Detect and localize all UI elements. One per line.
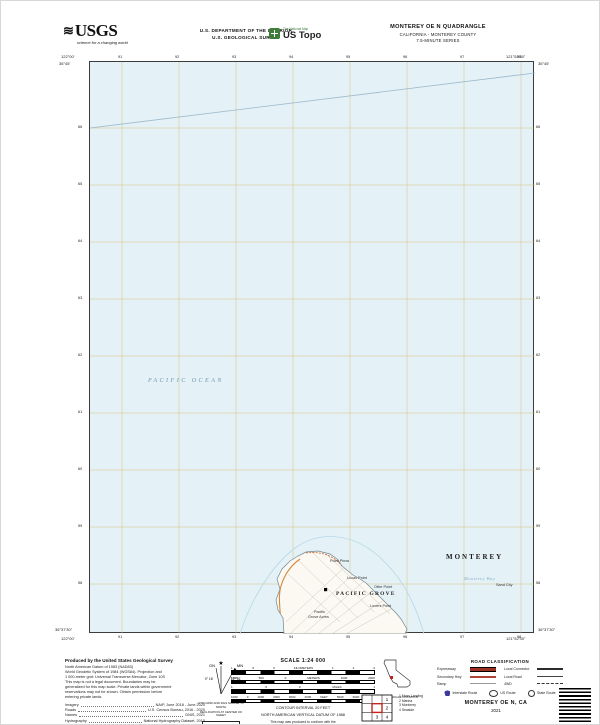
contour-interval: CONTOUR INTERVAL 20 FEET — [229, 706, 377, 710]
scale-number: 1 — [373, 685, 375, 689]
road-classification-legend: ROAD CLASSIFICATION ExpresswayLocal Conn… — [437, 659, 563, 697]
usgs-topo-sheet: ≋ USGS science for a changing world U.S.… — [0, 0, 600, 725]
production-notes: Produced by the United States Geological… — [65, 658, 205, 725]
adjoining-quads-list: 1 Moss Landing2 Marina3 Monterey4 Seasid… — [399, 694, 423, 725]
legend-row: Secondary Hwy — [437, 675, 496, 679]
grid-tick-left: 61 — [78, 410, 82, 414]
scale-number: KILOMETERS — [294, 666, 313, 670]
scale-number: 1 — [231, 685, 233, 689]
map-label: Lovers Point — [370, 604, 391, 608]
corner-coord-tr-lon: 121°52'30" — [506, 54, 525, 59]
true-north-star-icon: ★ — [218, 660, 223, 667]
map-label: Lucas Point — [347, 576, 367, 580]
dotted-leader — [79, 713, 183, 717]
scale-number: FEET — [320, 695, 328, 699]
data-sources-list: ImageryNAIP, June 2018 - June 2020RoadsU… — [65, 703, 205, 725]
quad-state: CALIFORNIA - MONTEREY COUNTY — [343, 32, 533, 37]
grid-tick-bottom: 98 — [517, 635, 521, 639]
map-label: PACIFIC GROVE — [336, 591, 396, 597]
scale-number: 1000 — [257, 695, 264, 699]
legend-title: ROAD CLASSIFICATION — [437, 659, 563, 664]
grid-tick-left: 63 — [78, 296, 82, 300]
grid-tick-top: 94 — [289, 55, 293, 59]
grid-tick-top: 95 — [346, 55, 350, 59]
interstate-shield-icon — [444, 690, 450, 696]
adjoining-quad-name: 1 Moss Landing — [399, 694, 423, 699]
quad-location-marker — [390, 676, 393, 679]
grid-tick-left: 62 — [78, 353, 82, 357]
map-label: MONTEREY — [446, 553, 503, 561]
grid-tick-bottom: 91 — [118, 635, 122, 639]
ustopo-logo: The National Map US Topo — [269, 27, 321, 40]
road-style-sample-icon — [470, 676, 496, 678]
scale-number: 0 — [273, 666, 275, 670]
legend-row-label: Ramp — [437, 682, 446, 686]
grid-tick-bottom: 94 — [289, 635, 293, 639]
corner-coord-br-lat: 36°37'30" — [538, 627, 555, 632]
legend-row-label: 4WD — [504, 682, 512, 686]
map-label: Pacific — [314, 610, 325, 614]
scale-bar — [231, 670, 375, 675]
grid-tick-top: 96 — [403, 55, 407, 59]
grid-tick-right: 63 — [536, 296, 540, 300]
notes-heading: Produced by the United States Geological… — [65, 658, 205, 663]
map-drawing — [90, 62, 535, 634]
map-label: Monterey Bay — [464, 576, 495, 581]
scale-number: 4000 — [305, 695, 312, 699]
map-label: PACIFIC OCEAN — [148, 378, 224, 384]
route-shield-label: State Route — [537, 691, 555, 695]
scale-number: .5 — [265, 685, 268, 689]
quad-series: 7.5-MINUTE SERIES — [343, 38, 533, 43]
ustopo-name: US Topo — [283, 31, 321, 40]
road-style-sample-icon — [537, 683, 563, 684]
map-label: Sand City — [496, 583, 512, 587]
quad-title: MONTEREY OE N QUADRANGLE — [343, 24, 533, 30]
scale-number: 5000 — [337, 695, 344, 699]
grid-north-label: GN — [209, 663, 215, 668]
route-shields-row: Interstate RouteUS RouteState Route — [437, 690, 563, 698]
scale-number: METERS — [307, 676, 320, 680]
adjoining-quads-diagram: 1 2 3 4 — [361, 694, 395, 722]
legend-row-label: Local Road — [504, 675, 522, 679]
scale-number: 1000 — [231, 695, 238, 699]
grid-tick-right: 62 — [536, 353, 540, 357]
vertical-datum: NORTH AMERICAN VERTICAL DATUM OF 1988 — [229, 713, 377, 717]
scale-number: 500 — [259, 676, 264, 680]
road-style-sample-icon — [537, 676, 563, 677]
grid-tick-top: 97 — [460, 55, 464, 59]
corner-coord-tl-lat: 36°45' — [59, 61, 70, 66]
grid-tick-right: 58 — [536, 581, 540, 585]
legend-row-label: Secondary Hwy — [437, 675, 462, 679]
grid-tick-left: 66 — [78, 125, 82, 129]
grid-tick-bottom: 95 — [346, 635, 350, 639]
corner-coord-bl-lat: 36°37'30" — [55, 627, 72, 632]
dotted-leader — [78, 708, 146, 712]
corner-coord-tr-lat: 36°45' — [538, 61, 549, 66]
scale-number: 3000 — [289, 695, 296, 699]
scale-number: .5 — [252, 666, 255, 670]
building-marker — [324, 588, 327, 591]
route-shield-item: State Route — [528, 690, 556, 698]
scale-number: 6000 — [353, 695, 360, 699]
quadrangle-title-block: MONTEREY OE N QUADRANGLE CALIFORNIA - MO… — [343, 24, 533, 43]
legend-row: Expressway — [437, 667, 496, 672]
scale-number: 2000 — [273, 695, 280, 699]
grid-tick-top: 92 — [175, 55, 179, 59]
scale-bar — [231, 680, 375, 685]
grid-tick-left: 59 — [78, 524, 82, 528]
scale-title: SCALE 1:24 000 — [229, 658, 377, 664]
us-shield-icon — [489, 690, 498, 697]
map-label: Grove Acres — [308, 615, 329, 619]
dotted-leader — [81, 703, 154, 707]
grid-tick-bottom: 96 — [403, 635, 407, 639]
usgs-logo: ≋ USGS science for a changing world — [63, 21, 128, 45]
scale-number: 1 — [231, 666, 233, 670]
offshore-limit-line — [90, 73, 535, 128]
utm-grid — [90, 62, 535, 634]
quadrangle-location-block: QUADRANGLE LOCATION — [377, 659, 421, 699]
road-style-sample-icon — [537, 668, 563, 670]
legend-row: Ramp — [437, 682, 496, 686]
route-shield-label: Interstate Route — [452, 691, 477, 695]
grid-tick-top: 93 — [232, 55, 236, 59]
route-shield-label: US Route — [500, 691, 515, 695]
grid-tick-bottom: 93 — [232, 635, 236, 639]
grid-tick-top: 98 — [517, 55, 521, 59]
corner-coord-tl-lon: 122°00' — [61, 54, 75, 59]
route-shield-item: US Route — [489, 690, 515, 697]
grid-tick-right: 65 — [536, 182, 540, 186]
california-outline-icon — [381, 659, 417, 689]
road-style-sample-icon — [470, 667, 496, 672]
gn-angle: 0° 16' — [205, 677, 214, 681]
sheet-title: MONTEREY OE N, CA — [431, 700, 561, 706]
grid-tick-right: 66 — [536, 125, 540, 129]
scale-number: 2000 — [368, 676, 375, 680]
dotted-leader — [89, 719, 142, 723]
map-area: PACIFIC OCEANMONTEREYMonterey BaySand Ci… — [89, 61, 534, 633]
sheet-title-block: MONTEREY OE N, CA 2021 — [431, 700, 561, 713]
barcode — [559, 688, 591, 722]
notes-lines: North American Datum of 1983 (NAD83)Worl… — [65, 665, 205, 700]
scale-number: 1000 — [341, 676, 348, 680]
sheet-year: 2021 — [431, 708, 561, 713]
road-style-sample-icon — [470, 683, 496, 684]
national-map-icon — [269, 28, 280, 39]
scale-number: MILES — [332, 685, 341, 689]
usgs-wordmark: USGS — [75, 21, 117, 41]
scale-block: SCALE 1:24 000 1.50KILOMETERS12310005000… — [229, 658, 377, 725]
corner-coord-br-lon: 121°52'30" — [506, 636, 525, 641]
grid-tick-left: 65 — [78, 182, 82, 186]
scale-number: 3 — [373, 666, 375, 670]
scale-number: 2 — [353, 666, 355, 670]
grid-tick-left: 58 — [78, 581, 82, 585]
route-shield-item: Interstate Route — [444, 690, 477, 696]
legend-row: 4WD — [504, 682, 563, 686]
grid-tick-bottom: 97 — [460, 635, 464, 639]
scale-number: 0 — [299, 685, 301, 689]
scale-bar — [231, 689, 375, 694]
grid-tick-right: 60 — [536, 467, 540, 471]
grid-tick-right: 64 — [536, 239, 540, 243]
scale-number: 0 — [285, 676, 287, 680]
scale-bar — [231, 699, 375, 704]
scale-bar-numbers: 1.50KILOMETERS123 — [231, 666, 375, 670]
usgs-wave-icon: ≋ — [63, 23, 74, 39]
grid-tick-right: 61 — [536, 410, 540, 414]
legend-row: Local Connector — [504, 667, 563, 672]
state-shield-icon — [528, 690, 536, 698]
scale-bars: 1.50KILOMETERS12310005000METERS100020001… — [229, 666, 377, 703]
map-label: Point Pinos — [330, 559, 349, 563]
legend-row-label: Expressway — [437, 667, 456, 671]
scale-number: 1 — [332, 666, 334, 670]
legend-rows: ExpresswayLocal ConnectorSecondary HwyLo… — [437, 667, 563, 686]
grid-tick-left: 60 — [78, 467, 82, 471]
grid-tick-right: 59 — [536, 524, 540, 528]
grid-tick-top: 91 — [118, 55, 122, 59]
grid-tick-bottom: 92 — [175, 635, 179, 639]
note-line: entering private lands. — [65, 695, 205, 700]
legend-row-label: Local Connector — [504, 667, 530, 671]
usgs-tagline: science for a changing world — [77, 40, 128, 45]
scale-number: 0 — [247, 695, 249, 699]
legend-row: Local Road — [504, 675, 563, 679]
corner-coord-bl-lon: 122°00' — [61, 636, 75, 641]
map-label: Otter Point — [374, 585, 392, 589]
grid-tick-left: 64 — [78, 239, 82, 243]
scale-number: 1000 — [231, 676, 238, 680]
adjoining-quad-name: 4 Seaside — [399, 708, 423, 713]
